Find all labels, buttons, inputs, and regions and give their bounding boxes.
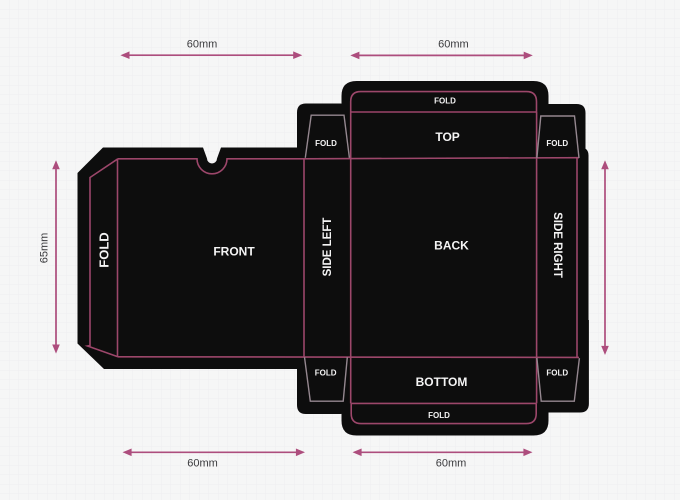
svg-text:SIDE LEFT: SIDE LEFT xyxy=(322,218,334,277)
svg-text:60mm: 60mm xyxy=(436,458,467,470)
svg-text:60mm: 60mm xyxy=(438,39,469,51)
svg-text:FRONT: FRONT xyxy=(213,245,255,259)
svg-text:TOP: TOP xyxy=(435,130,459,144)
svg-text:SIDE RIGHT: SIDE RIGHT xyxy=(551,212,563,278)
svg-text:60mm: 60mm xyxy=(187,458,218,470)
svg-text:FOLD: FOLD xyxy=(546,139,568,148)
svg-text:FOLD: FOLD xyxy=(315,139,337,148)
svg-text:FOLD: FOLD xyxy=(428,411,450,420)
svg-text:BACK: BACK xyxy=(434,238,469,252)
svg-text:FOLD: FOLD xyxy=(546,369,568,378)
svg-text:65mm: 65mm xyxy=(39,233,51,264)
svg-text:BOTTOM: BOTTOM xyxy=(416,375,468,389)
svg-text:FOLD: FOLD xyxy=(434,97,456,106)
svg-text:FOLD: FOLD xyxy=(97,232,112,267)
svg-text:60mm: 60mm xyxy=(187,39,218,51)
svg-text:FOLD: FOLD xyxy=(315,369,337,378)
